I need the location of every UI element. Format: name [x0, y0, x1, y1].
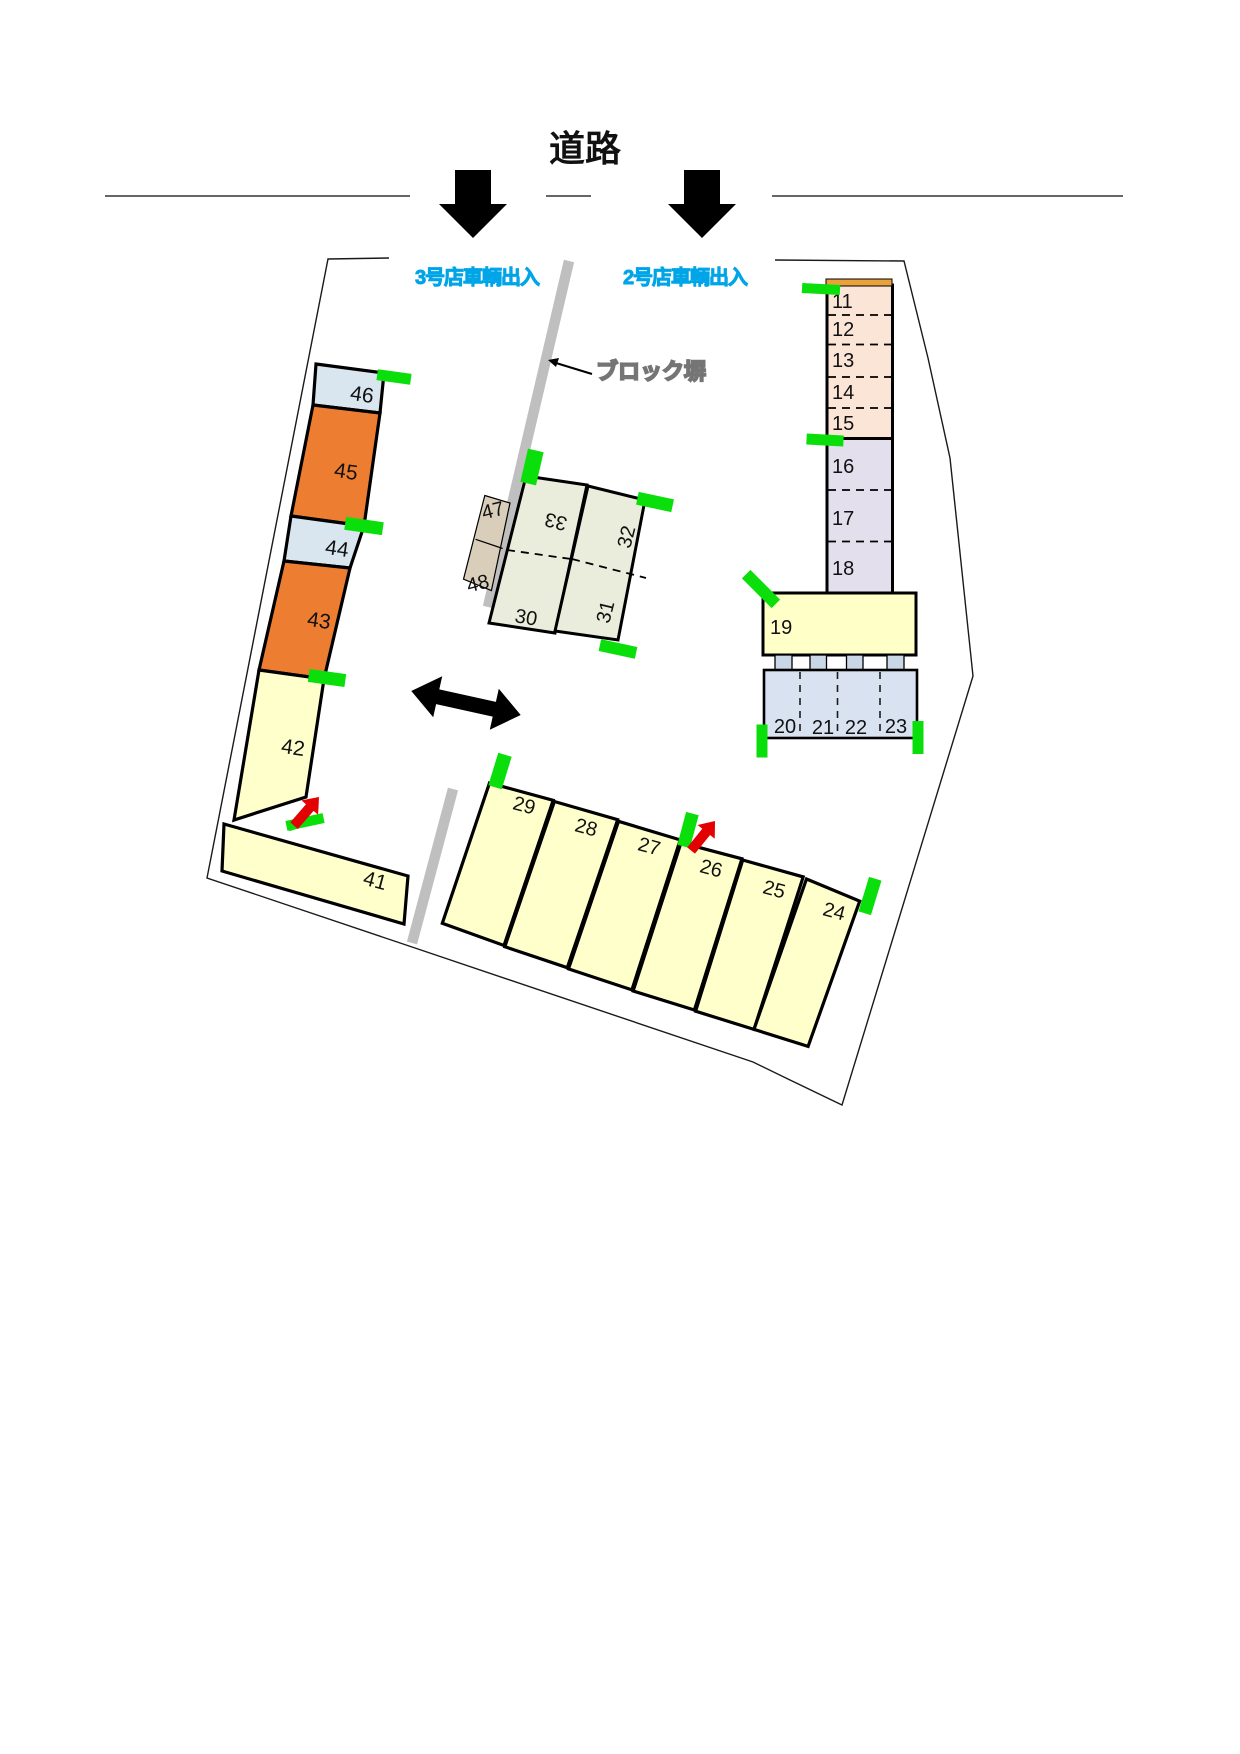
svg-text:道路: 道路 — [549, 128, 622, 169]
svg-text:20: 20 — [774, 716, 796, 738]
svg-text:18: 18 — [832, 558, 854, 580]
svg-text:23: 23 — [885, 716, 907, 738]
svg-text:45: 45 — [333, 459, 359, 485]
svg-text:19: 19 — [770, 617, 792, 639]
svg-text:ブロック塀: ブロック塀 — [596, 359, 706, 384]
svg-text:14: 14 — [832, 382, 854, 404]
svg-text:30: 30 — [513, 605, 539, 631]
svg-text:16: 16 — [832, 456, 854, 478]
svg-text:44: 44 — [324, 536, 351, 562]
svg-text:12: 12 — [832, 319, 854, 341]
svg-text:42: 42 — [280, 735, 306, 761]
svg-text:22: 22 — [845, 717, 867, 739]
svg-text:13: 13 — [832, 350, 854, 372]
svg-text:43: 43 — [306, 608, 332, 634]
svg-text:17: 17 — [832, 508, 854, 530]
svg-text:2号店車輌出入: 2号店車輌出入 — [623, 265, 748, 289]
svg-text:46: 46 — [349, 382, 375, 408]
svg-text:21: 21 — [812, 717, 834, 739]
svg-text:3号店車輌出入: 3号店車輌出入 — [415, 265, 540, 289]
svg-text:15: 15 — [832, 413, 854, 435]
